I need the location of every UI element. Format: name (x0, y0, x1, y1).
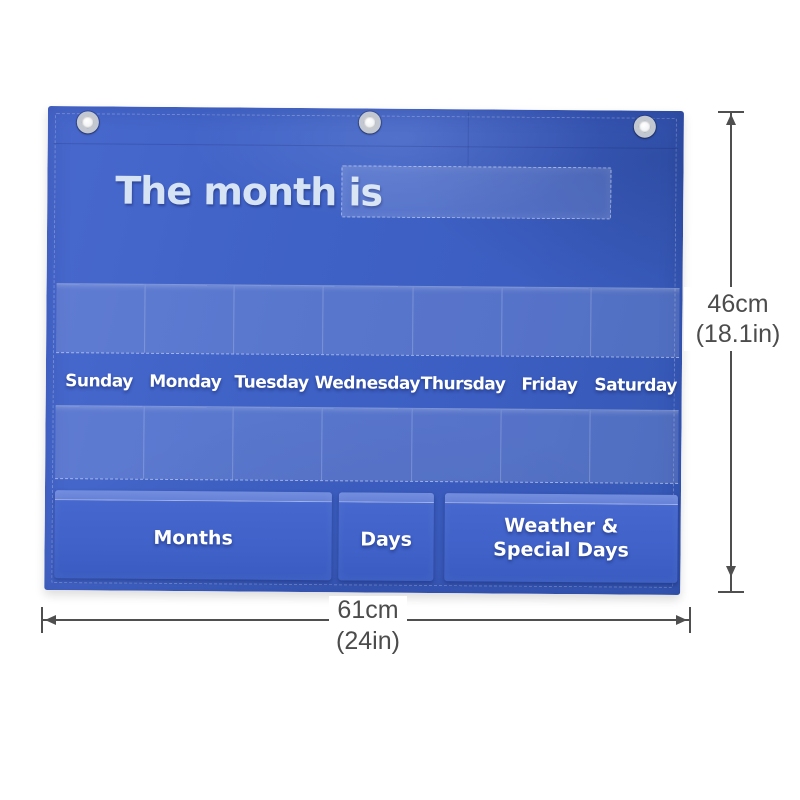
width-value: 61cm (329, 596, 406, 624)
day-label: Sunday (56, 366, 143, 397)
grommet-icon (77, 111, 99, 133)
weather-special-days-pocket: Weather & Special Days (444, 493, 678, 583)
clear-pocket (412, 409, 502, 482)
clear-pocket-row-bottom (55, 405, 679, 484)
day-label: Tuesday (228, 367, 315, 398)
day-label: Saturday (592, 370, 679, 401)
clear-pocket (501, 410, 591, 483)
clear-pocket (413, 287, 503, 356)
pocket-label: Weather & (504, 514, 618, 539)
clear-pocket (233, 407, 323, 480)
day-labels-row: Sunday Monday Tuesday Wednesday Thursday… (56, 366, 679, 401)
month-card-pocket (341, 165, 611, 219)
arrow-down-icon (726, 566, 736, 577)
day-label: Wednesday (315, 368, 421, 399)
pocket-chart: The month is Sunday Monday Tuesday Wedne… (44, 106, 684, 595)
clear-pocket (234, 285, 324, 354)
clear-pocket (590, 410, 679, 483)
pocket-label: Days (360, 527, 412, 551)
clear-pocket (502, 288, 592, 357)
width-dimension-cap-right (689, 607, 691, 633)
clear-pocket (145, 285, 235, 354)
arrow-right-icon (676, 615, 687, 625)
months-pocket: Months (54, 490, 332, 580)
arrow-up-icon (726, 114, 736, 125)
width-dimension-alt-label: (24in) (298, 626, 438, 656)
pocket-label: Months (153, 526, 233, 551)
height-value: 46cm (684, 289, 792, 319)
height-alt-value: (18.1in) (684, 319, 792, 349)
height-dimension-label: 46cm (18.1in) (684, 287, 792, 351)
clear-pocket (323, 286, 413, 355)
day-label: Monday (142, 367, 229, 398)
height-dimension-cap-top (718, 111, 744, 113)
height-dimension-cap-bottom (718, 591, 744, 593)
clear-pocket (591, 288, 680, 357)
clear-pocket (56, 284, 146, 353)
clear-pocket (322, 408, 412, 481)
clear-pocket-row-top (56, 283, 680, 358)
arrow-left-icon (45, 615, 56, 625)
clear-pocket (144, 407, 234, 480)
days-pocket: Days (338, 492, 434, 581)
day-label: Friday (506, 370, 593, 401)
pocket-label: Special Days (493, 538, 629, 563)
grommet-icon (359, 111, 381, 133)
vertical-seam (468, 112, 469, 165)
grommet-icon (634, 116, 656, 138)
day-label: Thursday (420, 369, 507, 400)
product-photo: The month is Sunday Monday Tuesday Wedne… (0, 0, 800, 800)
width-dimension-cap-left (41, 607, 43, 633)
height-dimension-line (730, 113, 732, 591)
width-dimension-label: 61cm (298, 595, 438, 625)
clear-pocket (55, 406, 145, 479)
width-alt-value: (24in) (336, 627, 400, 655)
top-seam (54, 143, 678, 149)
